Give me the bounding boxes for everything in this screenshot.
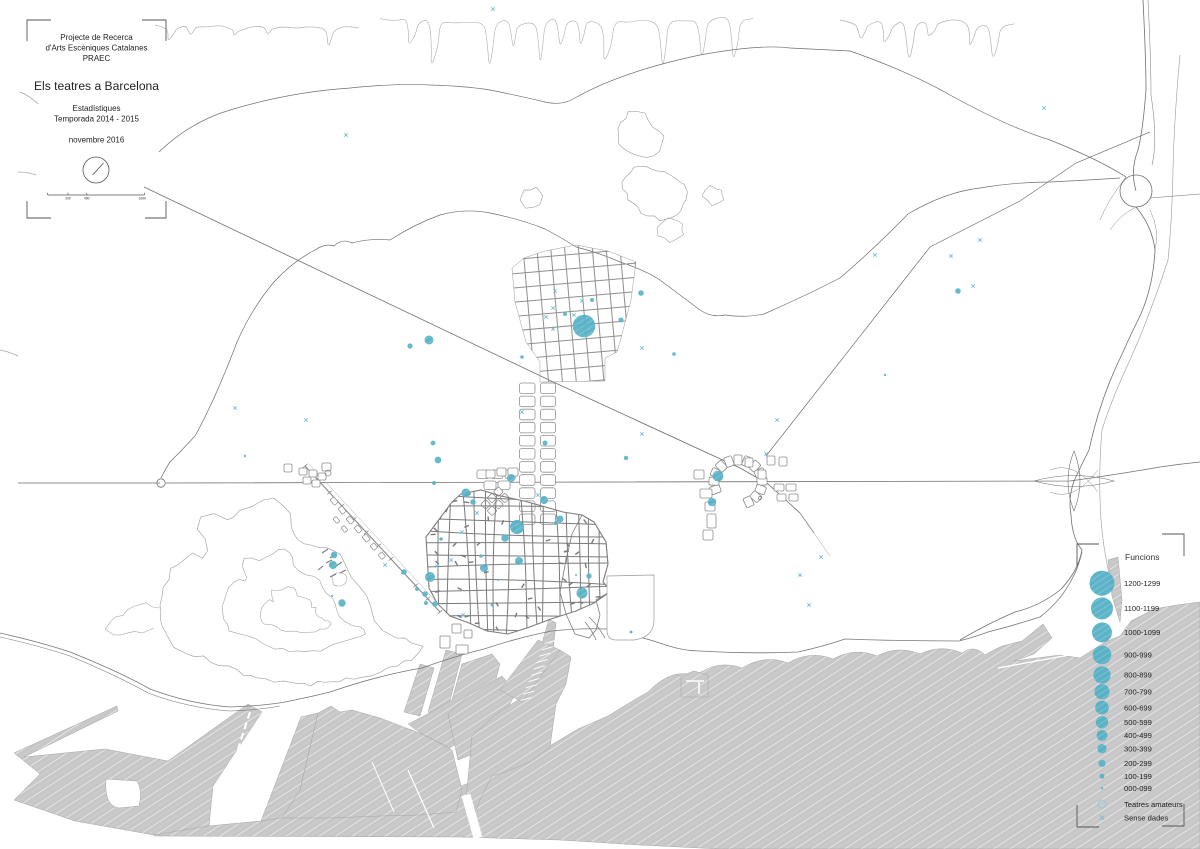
svg-text:400: 400 [84,197,90,201]
svg-text:200: 200 [65,197,71,201]
svg-text:000-099: 000-099 [1124,784,1152,793]
svg-text:Teatres amateurs: Teatres amateurs [1124,800,1183,809]
svg-text:PRAEC: PRAEC [83,54,111,63]
svg-text:900-999: 900-999 [1124,651,1152,660]
svg-text:500-599: 500-599 [1124,718,1152,727]
svg-text:300-399: 300-399 [1124,744,1152,753]
svg-text:Projecte de Recerca: Projecte de Recerca [60,33,133,42]
svg-text:Els teatres a Barcelona: Els teatres a Barcelona [34,79,159,93]
svg-text:1000-1099: 1000-1099 [1124,628,1160,637]
svg-text:1200-1299: 1200-1299 [1124,579,1160,588]
svg-text:600-699: 600-699 [1124,703,1152,712]
svg-text:1100-1199: 1100-1199 [1124,604,1159,613]
svg-text:novembre 2016: novembre 2016 [69,136,125,145]
svg-text:100-199: 100-199 [1124,772,1152,781]
svg-text:d'Arts Escèniques Catalanes: d'Arts Escèniques Catalanes [45,44,147,53]
svg-text:700-799: 700-799 [1124,687,1152,696]
svg-text:Temporada 2014 - 2015: Temporada 2014 - 2015 [54,115,140,124]
svg-text:Funcions: Funcions [1125,552,1160,562]
svg-text:Estadístiques: Estadístiques [72,104,120,113]
svg-text:1000: 1000 [139,197,146,201]
svg-text:800-899: 800-899 [1124,671,1152,680]
svg-text:200-299: 200-299 [1124,759,1152,768]
svg-text:Sense dades: Sense dades [1124,813,1169,822]
svg-text:400-499: 400-499 [1124,731,1152,740]
